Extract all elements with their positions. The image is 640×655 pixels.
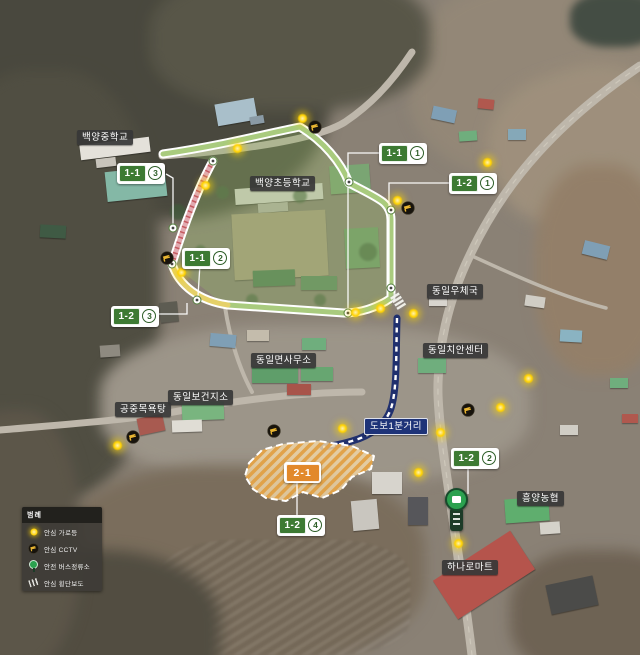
streetlight-dot-icon [28, 526, 39, 537]
streetlight-dot [350, 307, 361, 318]
route-badge-1-2-3: 1-23 [111, 306, 159, 327]
public-bathhouse-label: 공중목욕탕 [115, 402, 171, 417]
streetlight-dot [523, 373, 534, 384]
baekyang-elementary-school-label: 백양초등학교 [250, 176, 315, 191]
streetlight-dot [435, 427, 446, 438]
route-point-number: 4 [308, 518, 322, 532]
cctv-camera-icon [401, 201, 415, 215]
streetlight-dot [408, 308, 419, 319]
route-badge-1-2-2: 1-22 [451, 448, 499, 469]
baekyang-middle-school-label: 백양중학교 [77, 130, 133, 145]
route-badge-1-1-1: 1-11 [379, 143, 427, 164]
cctv-camera-icon [308, 120, 322, 134]
bus-stop-pole [450, 508, 463, 531]
cctv-icon [28, 543, 39, 554]
heungyang-nonghyup-label: 흥양농협 [517, 491, 564, 506]
streetlight-dot [375, 303, 386, 314]
cctv-camera-icon [461, 403, 475, 417]
route-badge-1-1-2: 1-12 [182, 248, 230, 269]
streetlight-dot [112, 440, 123, 451]
crosswalk-icon [28, 577, 39, 588]
bus-stop-marker [444, 488, 468, 531]
route-point-number: 3 [142, 309, 156, 323]
dongil-post-office-label: 동일우체국 [427, 284, 483, 299]
streetlight-dot [495, 402, 506, 413]
hanaro-mart-label: 하나로마트 [442, 560, 498, 575]
route-badge-1-2-1: 1-21 [449, 173, 497, 194]
legend-item-crosswalk: 안심 횡단보도 [22, 574, 102, 591]
cctv-camera-icon [160, 251, 174, 265]
zone-badge-2-1: 2-1 [284, 462, 321, 483]
dongil-health-branch-label: 동일보건지소 [168, 390, 233, 405]
route-id-label: 1-1 [184, 250, 212, 268]
route-id-label: 1-1 [381, 145, 409, 163]
cctv-camera-icon [267, 424, 281, 438]
legend-item-bus-stop: 안전 버스정류소 [22, 557, 102, 574]
streetlight-dot [297, 113, 308, 124]
route-id-label: 1-2 [113, 308, 141, 326]
walking-distance-label: 도보1분거리 [364, 418, 428, 435]
streetlight-dot [200, 180, 211, 191]
streetlight-dot [337, 423, 348, 434]
route-id-label: 1-2 [279, 517, 307, 535]
cctv-camera-icon [126, 430, 140, 444]
zone-id-label: 2-1 [286, 464, 320, 482]
dongil-township-office-label: 동일면사무소 [251, 353, 316, 368]
route-point-number: 3 [148, 166, 162, 180]
streetlight-dot [482, 157, 493, 168]
route-badge-1-1-3: 1-13 [117, 163, 165, 184]
route-point-number: 2 [213, 251, 227, 265]
route-point-number: 2 [482, 451, 496, 465]
route-id-label: 1-2 [453, 450, 481, 468]
aerial-safety-map: 1-131-121-231-111-211-221-242-1 백양중학교백양초… [0, 0, 640, 655]
legend-item-streetlight: 안심 가로등 [22, 523, 102, 540]
route-id-label: 1-2 [451, 175, 479, 193]
route-point-number: 1 [480, 176, 494, 190]
route-id-label: 1-1 [119, 165, 147, 183]
bus-stop-sign-icon [445, 488, 468, 511]
legend-title: 범례 [22, 507, 102, 523]
streetlight-dot [413, 467, 424, 478]
dongil-police-center-label: 동일치안센터 [423, 343, 488, 358]
route-point-number: 1 [410, 146, 424, 160]
legend-item-cctv: 안심 CCTV [22, 540, 102, 557]
bus-stop-icon [28, 560, 39, 571]
streetlight-dot [232, 143, 243, 154]
route-badge-1-2-4: 1-24 [277, 515, 325, 536]
legend-box: 범례 안심 가로등 안심 CCTV 안전 버스정류소 안심 횡단보도 [22, 507, 102, 591]
streetlight-dot [453, 538, 464, 549]
